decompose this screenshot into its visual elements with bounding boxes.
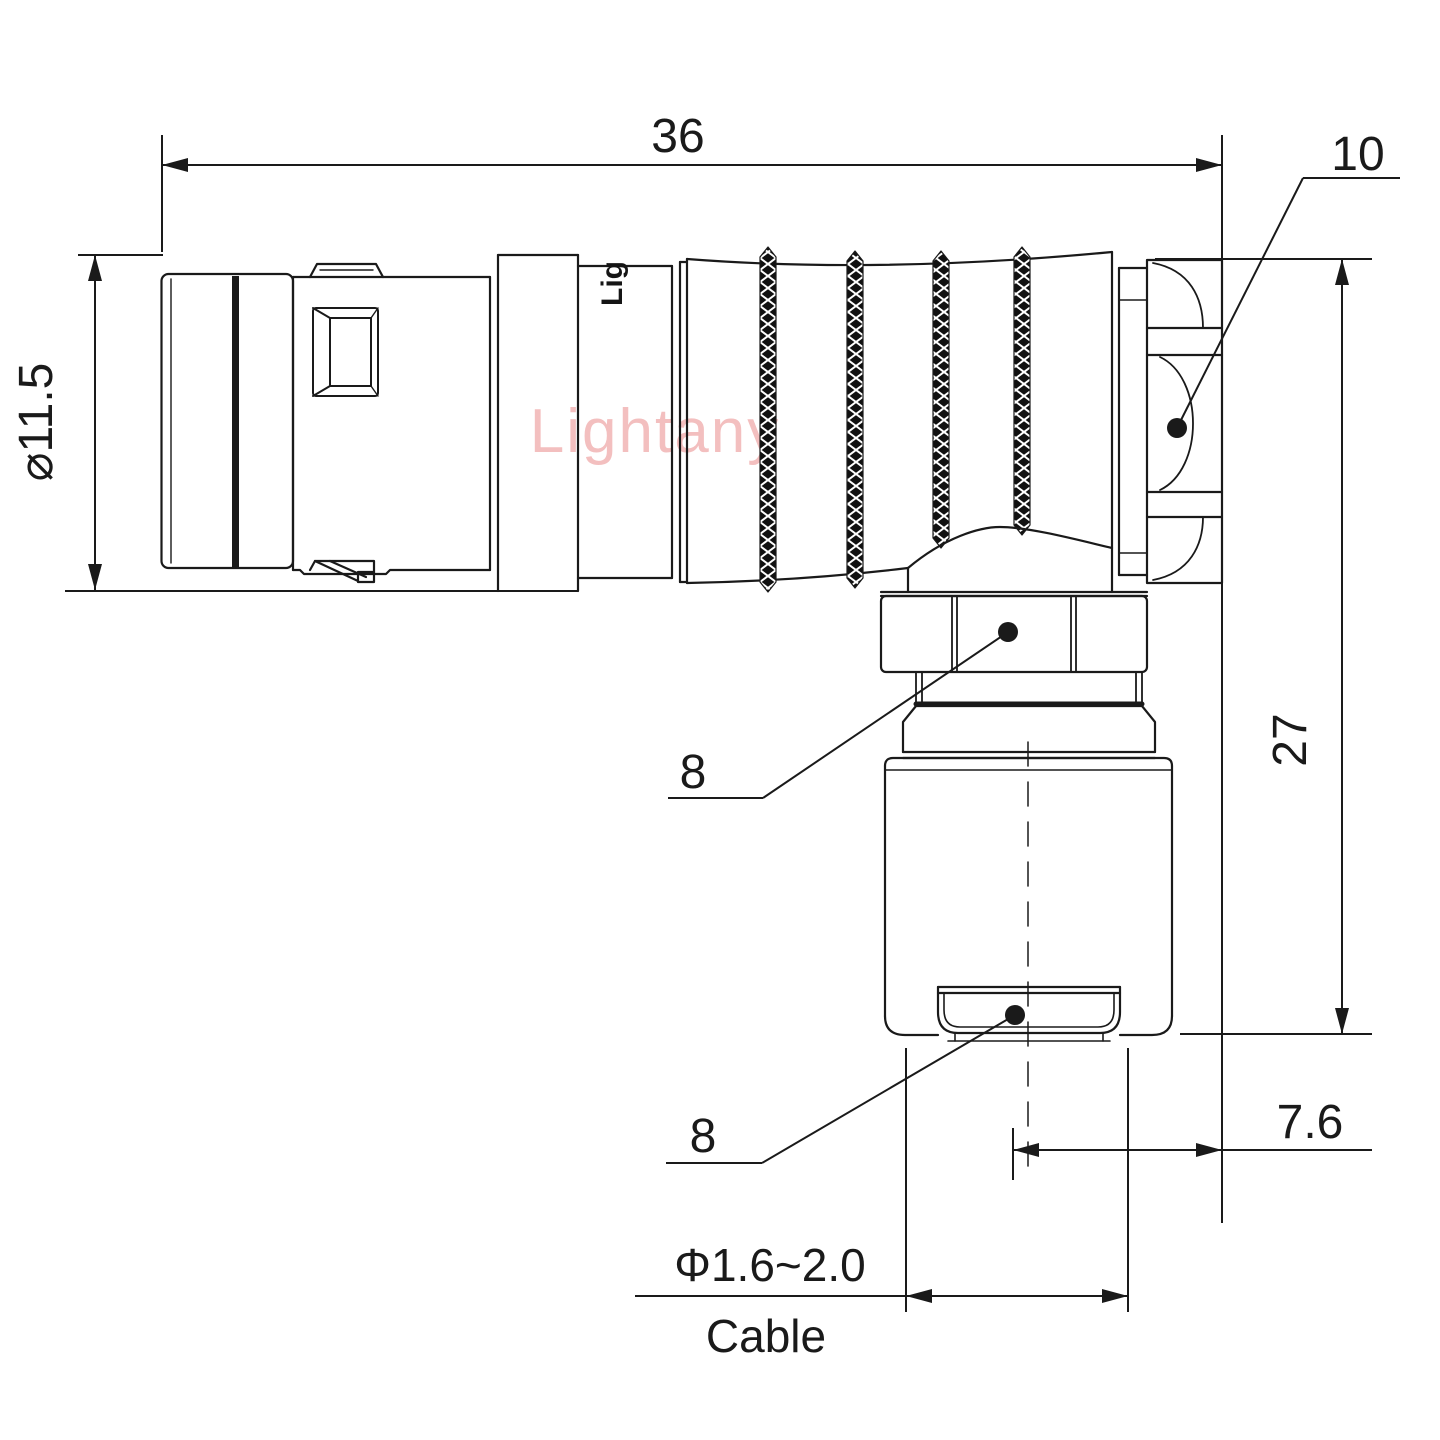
keyway-window [313,308,378,396]
dim-clamp-nut-label: 8 [690,1110,717,1163]
arrow-right [1196,158,1222,172]
engraving-text: Lig [596,261,629,306]
dim-height-label: 27 [1264,713,1317,766]
knurl-ring-2 [847,251,863,588]
dim-cap-size-label: 10 [1331,128,1384,181]
leader-gland-nut [668,622,1018,798]
connector-side-view [162,247,1223,1180]
arrow-down [1335,1008,1349,1034]
plug-key-section [293,264,490,582]
leader-clamp-nut [666,1005,1025,1163]
cable-cavity [938,987,1120,1041]
leader-cap-size [1167,178,1400,438]
knurl-ring-3 [933,251,949,548]
bottom-lug-ramp [310,561,374,582]
arrow-right [1196,1143,1222,1157]
dim-overall-length [162,135,1222,1223]
arrow-left [1013,1143,1039,1157]
arrow-down [88,564,102,590]
dim-gland-nut-label: 8 [680,746,707,799]
gland-neck [903,672,1155,758]
arrow-up [1335,259,1349,285]
dim-shell-diameter-label: ⌀11.5 [10,363,63,482]
dim-overall-length-label: 36 [651,110,704,163]
arrow-left [906,1289,932,1303]
knurl-ring-1 [760,247,776,592]
drawing-page: Lightany [0,0,1440,1440]
watermark-text: Lightany [530,397,780,466]
arrow-left [162,158,188,172]
leader-dot [1167,418,1187,438]
engraving: Lig [596,261,629,306]
plug-front-shell [162,274,294,570]
dimension-layer [65,135,1400,1312]
dim-cable-range-label: Φ1.6~2.0 [674,1239,865,1291]
knurl-ring-4 [1014,247,1030,535]
dim-axis-offset-label: 7.6 [1277,1096,1344,1149]
connector-elbow-drawing: Lightany [0,0,1440,1440]
leader-dot [1005,1005,1025,1025]
leader-dot [998,622,1018,642]
cable-word-label: Cable [706,1310,826,1362]
arrow-up [88,255,102,281]
knurl-rings [760,247,1030,592]
dim-shell-diameter [65,255,578,591]
arrow-right [1102,1289,1128,1303]
dim-height [1155,259,1372,1034]
